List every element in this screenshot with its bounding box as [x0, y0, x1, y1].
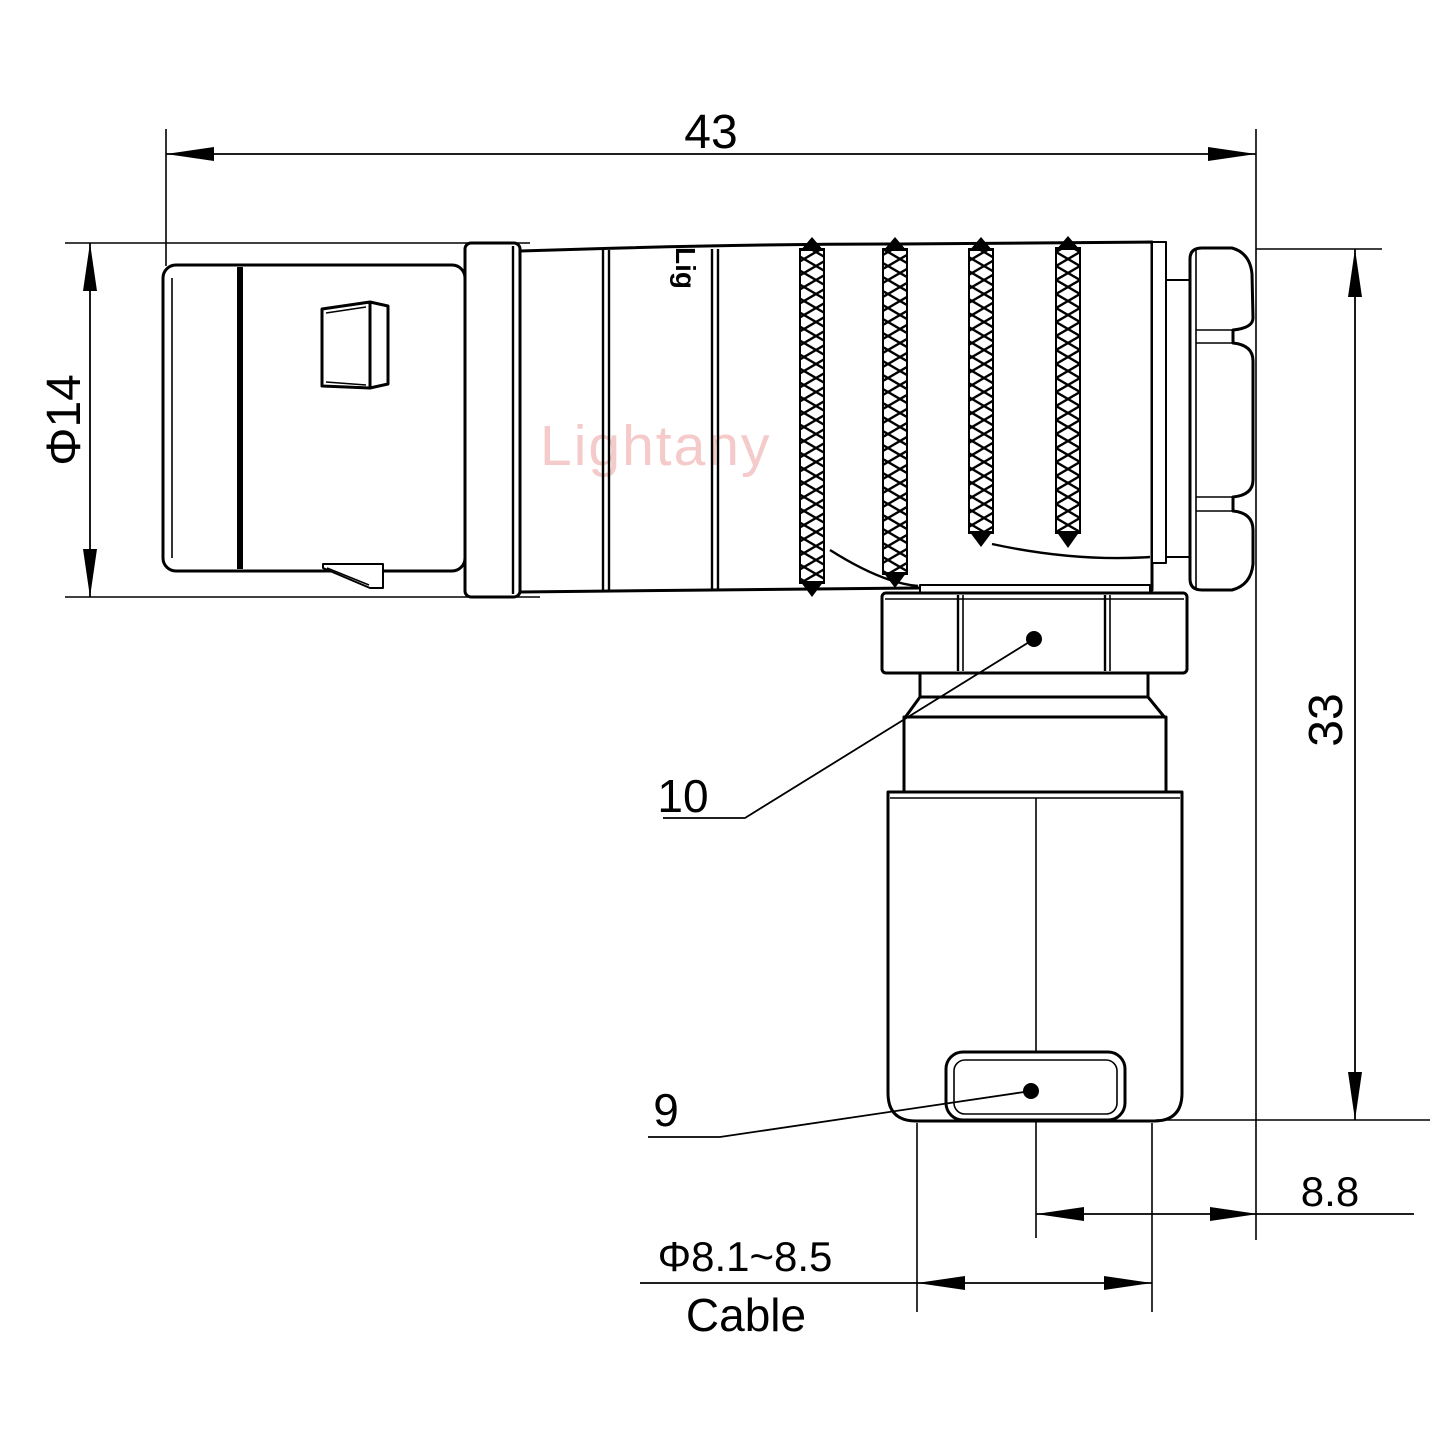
dimension-rear-offset: 8.8 [1036, 1168, 1414, 1221]
elbow-neck [920, 673, 1148, 697]
rear-end-cap [1190, 248, 1253, 590]
elbow-upper-body [904, 717, 1166, 792]
dim-front-diameter-text: Φ14 [38, 374, 91, 466]
watermark: Lightany [540, 414, 772, 478]
dim-rear-offset-text: 8.8 [1301, 1168, 1359, 1215]
knurl-band-1 [800, 237, 824, 597]
body-brand-print: Lig [670, 247, 701, 289]
dimension-cable: Φ8.1~8.5 Cable [640, 1123, 1152, 1341]
dim-cable-diameter-text: Φ8.1~8.5 [658, 1233, 833, 1280]
latch-key-tab [322, 302, 388, 388]
knurl-band-3 [969, 237, 993, 547]
dim-height-text: 33 [1300, 693, 1353, 746]
rear-step [1166, 280, 1190, 557]
front-collar [465, 243, 520, 597]
connector-outline: Lightany [163, 236, 1253, 1238]
part-label-10-text: 10 [657, 770, 708, 822]
connector-dimension-drawing: Lightany [0, 0, 1440, 1440]
dim-overall-length-text: 43 [684, 106, 737, 159]
part-label-9-text: 9 [653, 1084, 679, 1136]
front-shell [163, 265, 465, 571]
knurl-band-2 [883, 237, 907, 588]
technical-drawing-canvas: Lightany [0, 0, 1440, 1440]
knurl-band-4 [1056, 236, 1080, 548]
bayonet-notch [323, 564, 383, 588]
dim-cable-label-text: Cable [686, 1289, 806, 1341]
rear-neck [1152, 242, 1166, 563]
